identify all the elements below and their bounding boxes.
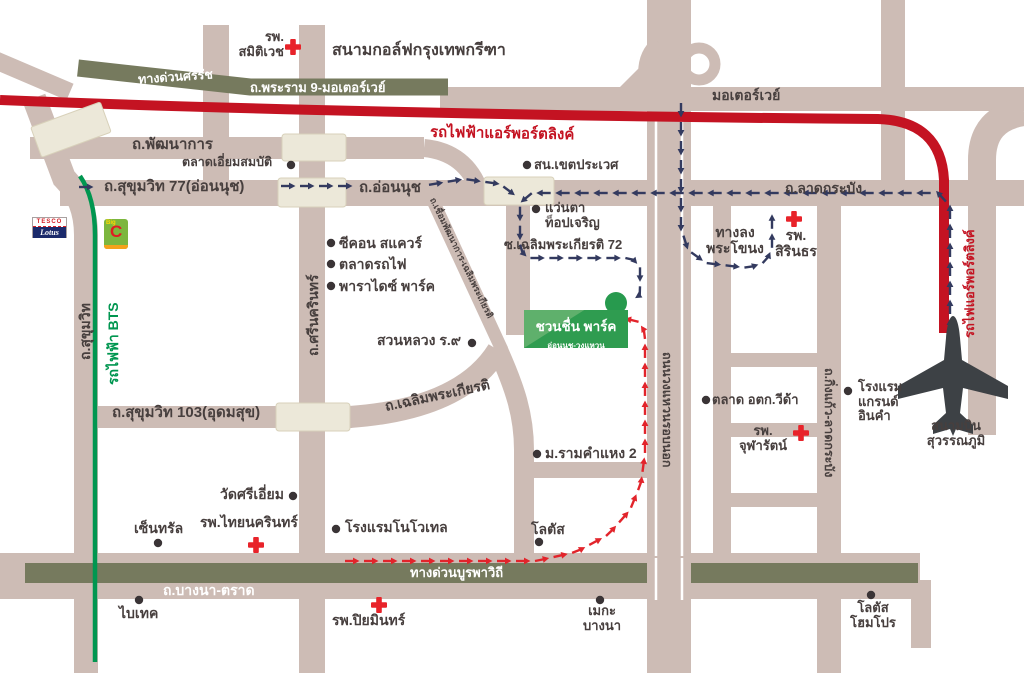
prawet-police-label: สน.เขตประเวศ (534, 158, 618, 173)
king-kaeo-road-label: ถ.กิ่งแก้ว-ลาดกระบัง (822, 368, 836, 477)
lotus-homepro-dot (867, 591, 875, 599)
map-geometry (0, 0, 1024, 673)
phatthanakan-road-label: ถ.พัฒนาการ (132, 137, 213, 154)
sirindhorn-hospital-label: รพ. สิรินธร (770, 228, 822, 259)
thai-nakarin-hospital-label: รพ.ไทยนครินทร์ (200, 515, 298, 531)
lotus-label: โลตัส (531, 522, 565, 538)
central-dot (154, 539, 162, 547)
top-charoen-dot (532, 205, 540, 213)
outer-ring-road-label: ถนนวงแหวนรอบนอก (660, 352, 674, 467)
seacon-dot (327, 239, 335, 247)
sukhumvit77-road-label: ถ.สุขุมวิท 77(อ่อนนุช) (104, 179, 244, 196)
lotus-homepro-label: โลตัส โฮมโปร (846, 601, 900, 630)
park-subtitle: อ่อนนุช-วงแหวน (524, 339, 628, 348)
rama9-motorway-label: ถ.พระราม 9-มอเตอร์เวย์ (250, 81, 385, 96)
otk-market-dot (702, 396, 710, 404)
bts-line-label: รถไฟฟ้า BTS (106, 302, 122, 385)
iam-sombat-dot (287, 161, 295, 169)
samitivej-hospital-label: รพ. สมิติเวช (228, 30, 284, 59)
phrakanong-exit-label: ทางลง พระโขนง (698, 225, 772, 256)
novotel-hotel-label: โรงแรมโนโวเทล (345, 520, 448, 536)
ramkhamhaeng2-label: ม.รามคำแหง 2 (545, 446, 637, 462)
onnut-road-label: ถ.อ่อนนุช (359, 180, 421, 197)
ramkhamhaeng2-dot (533, 450, 541, 458)
novotel-dot (332, 525, 340, 533)
srinagarindra-road-label: ถ.ศรีนครินทร์ (306, 274, 322, 356)
central-label: เซ็นทรัล (134, 521, 183, 537)
sirindhorn-cross-icon (786, 211, 802, 227)
seacon-square-label: ซีคอน สแควร์ (339, 236, 422, 252)
bitec-label: ไบเทค (119, 606, 158, 622)
big-c-logo-bar (104, 245, 128, 249)
suan-luang-label: สวนหลวง ร.๙ (377, 333, 461, 349)
samitivej-cross-icon (285, 39, 301, 55)
lat-krabang-road-label: ถ.ลาดกระบัง (785, 181, 862, 197)
iam-sombat-market-label: ตลาดเอี่ยมสมบัติ (182, 155, 272, 169)
piyamin-hospital-label: รพ.ปิยมินทร์ (332, 613, 405, 629)
motorway-label: มอเตอร์เวย์ (712, 88, 780, 104)
chularat-hospital-label: รพ. จุฬารัตน์ (735, 424, 791, 453)
train-market-dot (327, 260, 335, 268)
wat-sri-iam-label: วัดศรีเอี่ยม (220, 487, 284, 503)
lotus-logo-text: Lotus (33, 227, 66, 238)
thai-nakarin-cross-icon (248, 537, 264, 553)
lotus-dot (535, 538, 543, 546)
golf-course-label: สนามกอล์ฟกรุงเทพกรีฑา (332, 42, 506, 60)
tesco-lotus-logo: TESCO Lotus (32, 217, 67, 238)
grand-inkham-dot (844, 387, 852, 395)
airport-link-side-label: รถไฟแอร์พอร์ตลิงค์ (963, 229, 978, 338)
paradise-park-label: พาราไดซ์ พาร์ค (339, 279, 435, 295)
airport-link-label: รถไฟฟ้าแอร์พอร์ตลิงค์ (430, 125, 575, 144)
prawet-police-dot (523, 161, 531, 169)
big-c-logo: Big C (104, 219, 128, 249)
suvarnabhumi-airport-label: สนามบิน สุวรรณภูมิ (912, 419, 1000, 448)
soi-chaloem72-label: ซ.เฉลิมพระเกียรติ 72 (504, 238, 622, 253)
suan-luang-dot (468, 339, 476, 347)
wat-sri-iam-dot (289, 492, 297, 500)
grand-inkham-hotel-label: โรงแรม แกรนด์ อินคำ (858, 380, 902, 424)
route-map: สนามกอล์ฟกรุงเทพกรีฑา รพ. สมิติเวช ทางด่… (0, 0, 1024, 673)
paradise-dot (327, 282, 335, 290)
tesco-logo-text: TESCO (33, 218, 66, 227)
park-name: ชวนชื่น พาร์ค (524, 315, 628, 337)
top-charoen-label: แว่นตา ท็อปเจริญ (545, 201, 600, 230)
destination-park-box: ชวนชื่น พาร์ค อ่อนนุช-วงแหวน (524, 310, 628, 348)
bangna-trat-road-label: ถ.บางนา-ตราด (163, 583, 255, 599)
bitec-dot (135, 596, 143, 604)
train-market-label: ตลาดรถไฟ (339, 257, 407, 273)
mega-bangna-label: เมกะ บางนา (578, 604, 626, 633)
sukhumvit103-road-label: ถ.สุขุมวิท 103(อุดมสุข) (112, 405, 260, 422)
burapha-expressway-label: ทางด่วนบูรพาวิถี (410, 566, 503, 581)
otk-market-label: ตลาด อตก.วีด้า (712, 393, 799, 408)
big-c-logo-letter: C (110, 222, 122, 242)
sukhumvit-road-label: ถ.สุขุมวิท (78, 303, 94, 360)
piyamin-cross-icon (371, 597, 387, 613)
